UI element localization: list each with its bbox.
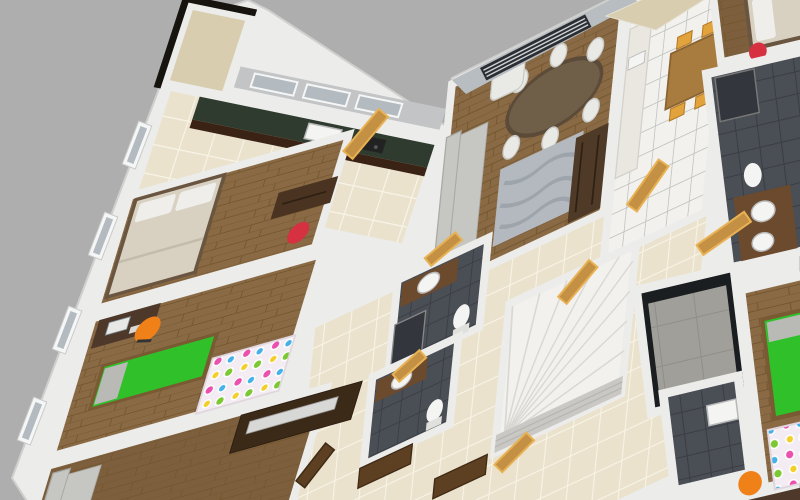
shower (715, 69, 759, 122)
floorplan-render (0, 0, 800, 500)
bathroom-right-lower-floor (663, 376, 750, 491)
floorplan-svg (0, 0, 800, 500)
